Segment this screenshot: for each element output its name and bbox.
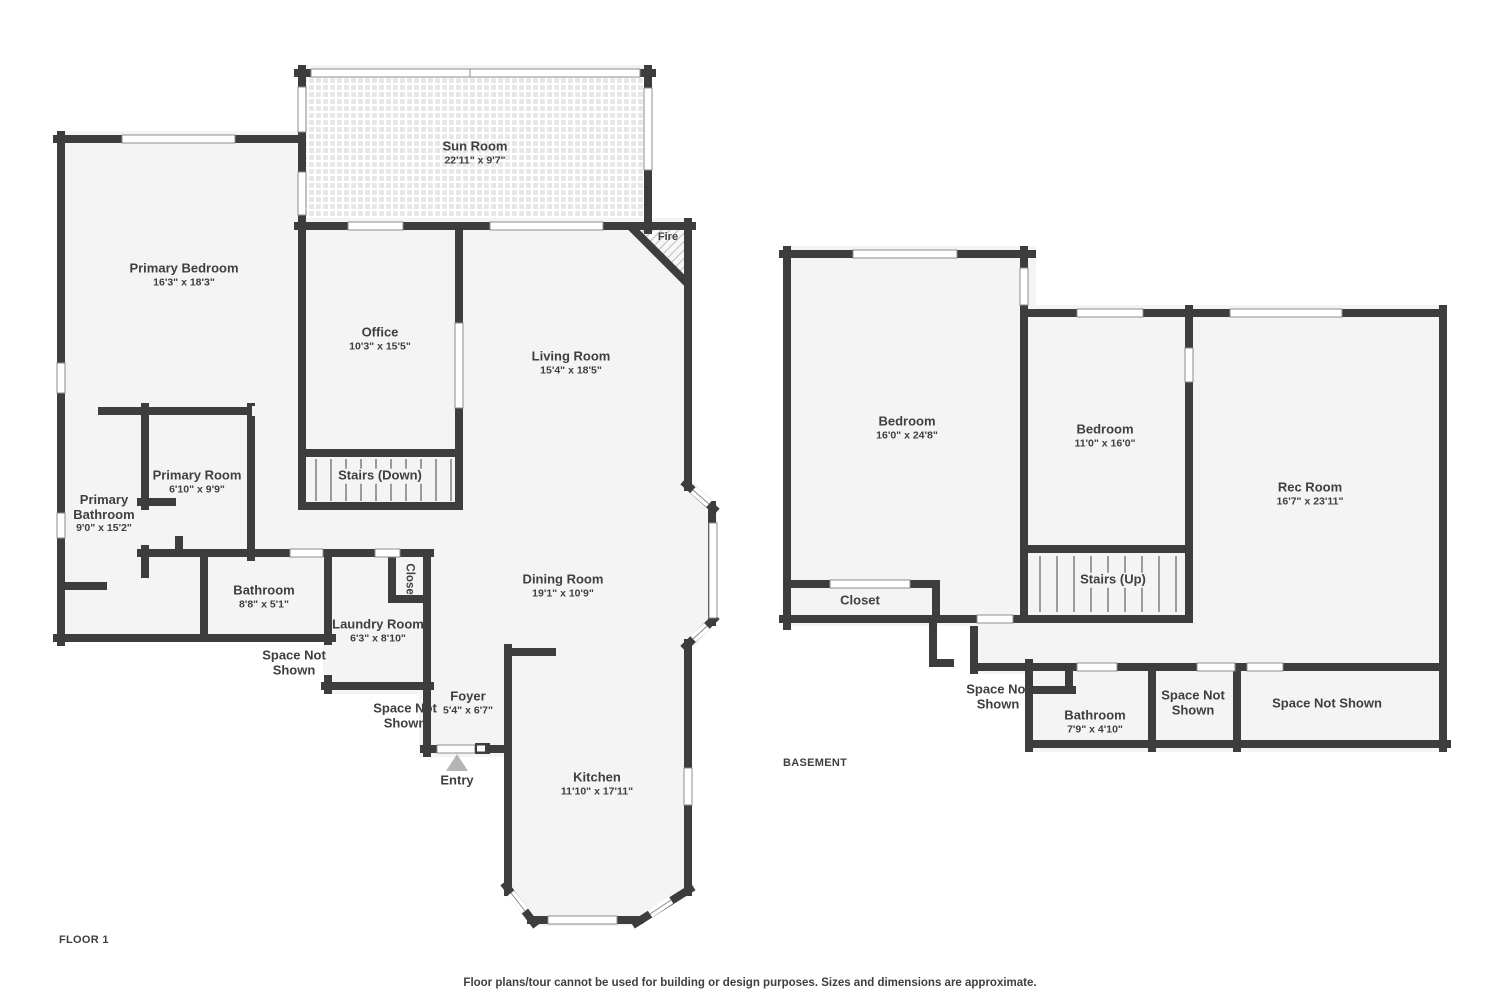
room-name: Dining Room	[523, 572, 604, 587]
room-dims: 11'10" x 17'11"	[561, 786, 633, 798]
room-dims: 9'0" x 15'2"	[58, 523, 150, 535]
room-label-basement-bedroom-2: Bedroom 11'0" x 16'0"	[1074, 422, 1135, 449]
entry-text: Entry	[440, 774, 473, 789]
floor-plan-canvas	[0, 0, 1500, 1000]
room-dims: 16'0" x 24'8"	[876, 430, 938, 442]
room-dims: 15'4" x 18'5"	[532, 365, 611, 377]
room-dims: 11'0" x 16'0"	[1074, 438, 1135, 450]
room-label-dining-room: Dining Room 19'1" x 10'9"	[523, 572, 604, 599]
room-label-living-room: Living Room 15'4" x 18'5"	[532, 349, 611, 376]
basement-footprint	[783, 246, 1447, 752]
room-label-stairs-up: Stairs (Up)	[1075, 573, 1151, 588]
fire-text: Fire	[658, 231, 678, 243]
entry-door-panel	[477, 746, 485, 752]
room-name: Foyer	[443, 689, 493, 704]
room-name: Bedroom	[876, 414, 938, 429]
room-name: Office	[349, 325, 411, 340]
space-not-shown-text: Space Not Shown	[1161, 688, 1225, 717]
space-not-shown-text: Space Not Shown	[262, 648, 326, 677]
room-name: Bedroom	[1074, 422, 1135, 437]
room-label-basement-bathroom: Bathroom 7'9" x 4'10"	[1064, 708, 1125, 735]
room-dims: 10'3" x 15'5"	[349, 341, 411, 353]
room-name: Sun Room	[443, 139, 508, 154]
room-label-sun-room: Sun Room 22'11" x 9'7"	[443, 139, 508, 166]
room-dims: 5'4" x 6'7"	[443, 705, 493, 717]
space-not-shown-label: Space Not Shown	[373, 701, 437, 730]
room-dims: 7'9" x 4'10"	[1064, 724, 1125, 736]
room-label-primary-bathroom: Primary Bathroom 9'0" x 15'2"	[58, 493, 150, 535]
room-name: Closet	[403, 563, 416, 598]
room-label-rec-room: Rec Room 16'7" x 23'11"	[1277, 480, 1344, 507]
room-dims: 16'3" x 18'3"	[129, 277, 238, 289]
room-label-laundry-room: Laundry Room 6'3" x 8'10"	[332, 617, 424, 644]
room-name: Primary Bathroom	[58, 493, 150, 522]
disclaimer-text: Floor plans/tour cannot be used for buil…	[463, 977, 1036, 989]
room-name: Primary Bedroom	[129, 261, 238, 276]
space-not-shown-label: Space Not Shown	[262, 648, 326, 677]
room-name: Bathroom	[1064, 708, 1125, 723]
space-not-shown-label: Space Not Shown	[1161, 688, 1225, 717]
room-label-stairs-down: Stairs (Down)	[333, 469, 427, 484]
room-label-basement-closet: Closet	[840, 594, 880, 609]
room-dims: 6'3" x 8'10"	[332, 633, 424, 645]
room-dims: 6'10" x 9'9"	[153, 484, 242, 496]
room-dims: 8'8" x 5'1"	[233, 599, 294, 611]
room-dims: 22'11" x 9'7"	[443, 155, 508, 167]
room-label-foyer: Foyer 5'4" x 6'7"	[443, 689, 493, 716]
basement-title: BASEMENT	[783, 757, 847, 769]
floor1-title: FLOOR 1	[59, 934, 109, 946]
room-name: Stairs (Up)	[1075, 573, 1151, 588]
room-label-bathroom: Bathroom 8'8" x 5'1"	[233, 583, 294, 610]
room-label-basement-bedroom-1: Bedroom 16'0" x 24'8"	[876, 414, 938, 441]
room-name: Living Room	[532, 349, 611, 364]
room-label-primary-bedroom: Primary Bedroom 16'3" x 18'3"	[129, 261, 238, 288]
fire-label: Fire	[658, 231, 678, 243]
space-not-shown-text: Space Not Shown	[966, 682, 1030, 711]
room-dims: 19'1" x 10'9"	[523, 588, 604, 600]
entry-label: Entry	[440, 774, 473, 789]
room-label-primary-room: Primary Room 6'10" x 9'9"	[153, 468, 242, 495]
space-not-shown-text: Space Not Shown	[373, 701, 437, 730]
floor-plan-page: Sun Room 22'11" x 9'7" Primary Bedroom 1…	[0, 0, 1500, 1000]
room-name: Stairs (Down)	[333, 469, 427, 484]
space-not-shown-text: Space Not Shown	[1272, 697, 1382, 712]
space-not-shown-label: Space Not Shown	[1272, 697, 1382, 712]
space-not-shown-label: Space Not Shown	[966, 682, 1030, 711]
room-label-office: Office 10'3" x 15'5"	[349, 325, 411, 352]
room-name: Laundry Room	[332, 617, 424, 632]
room-name: Kitchen	[561, 770, 633, 785]
room-label-kitchen: Kitchen 11'10" x 17'11"	[561, 770, 633, 797]
room-name: Closet	[840, 594, 880, 609]
room-name: Bathroom	[233, 583, 294, 598]
room-label-closet: Closet	[403, 563, 416, 598]
basement-plan	[783, 246, 1447, 752]
room-name: Rec Room	[1277, 480, 1344, 495]
room-dims: 16'7" x 23'11"	[1277, 496, 1344, 508]
room-name: Primary Room	[153, 468, 242, 483]
